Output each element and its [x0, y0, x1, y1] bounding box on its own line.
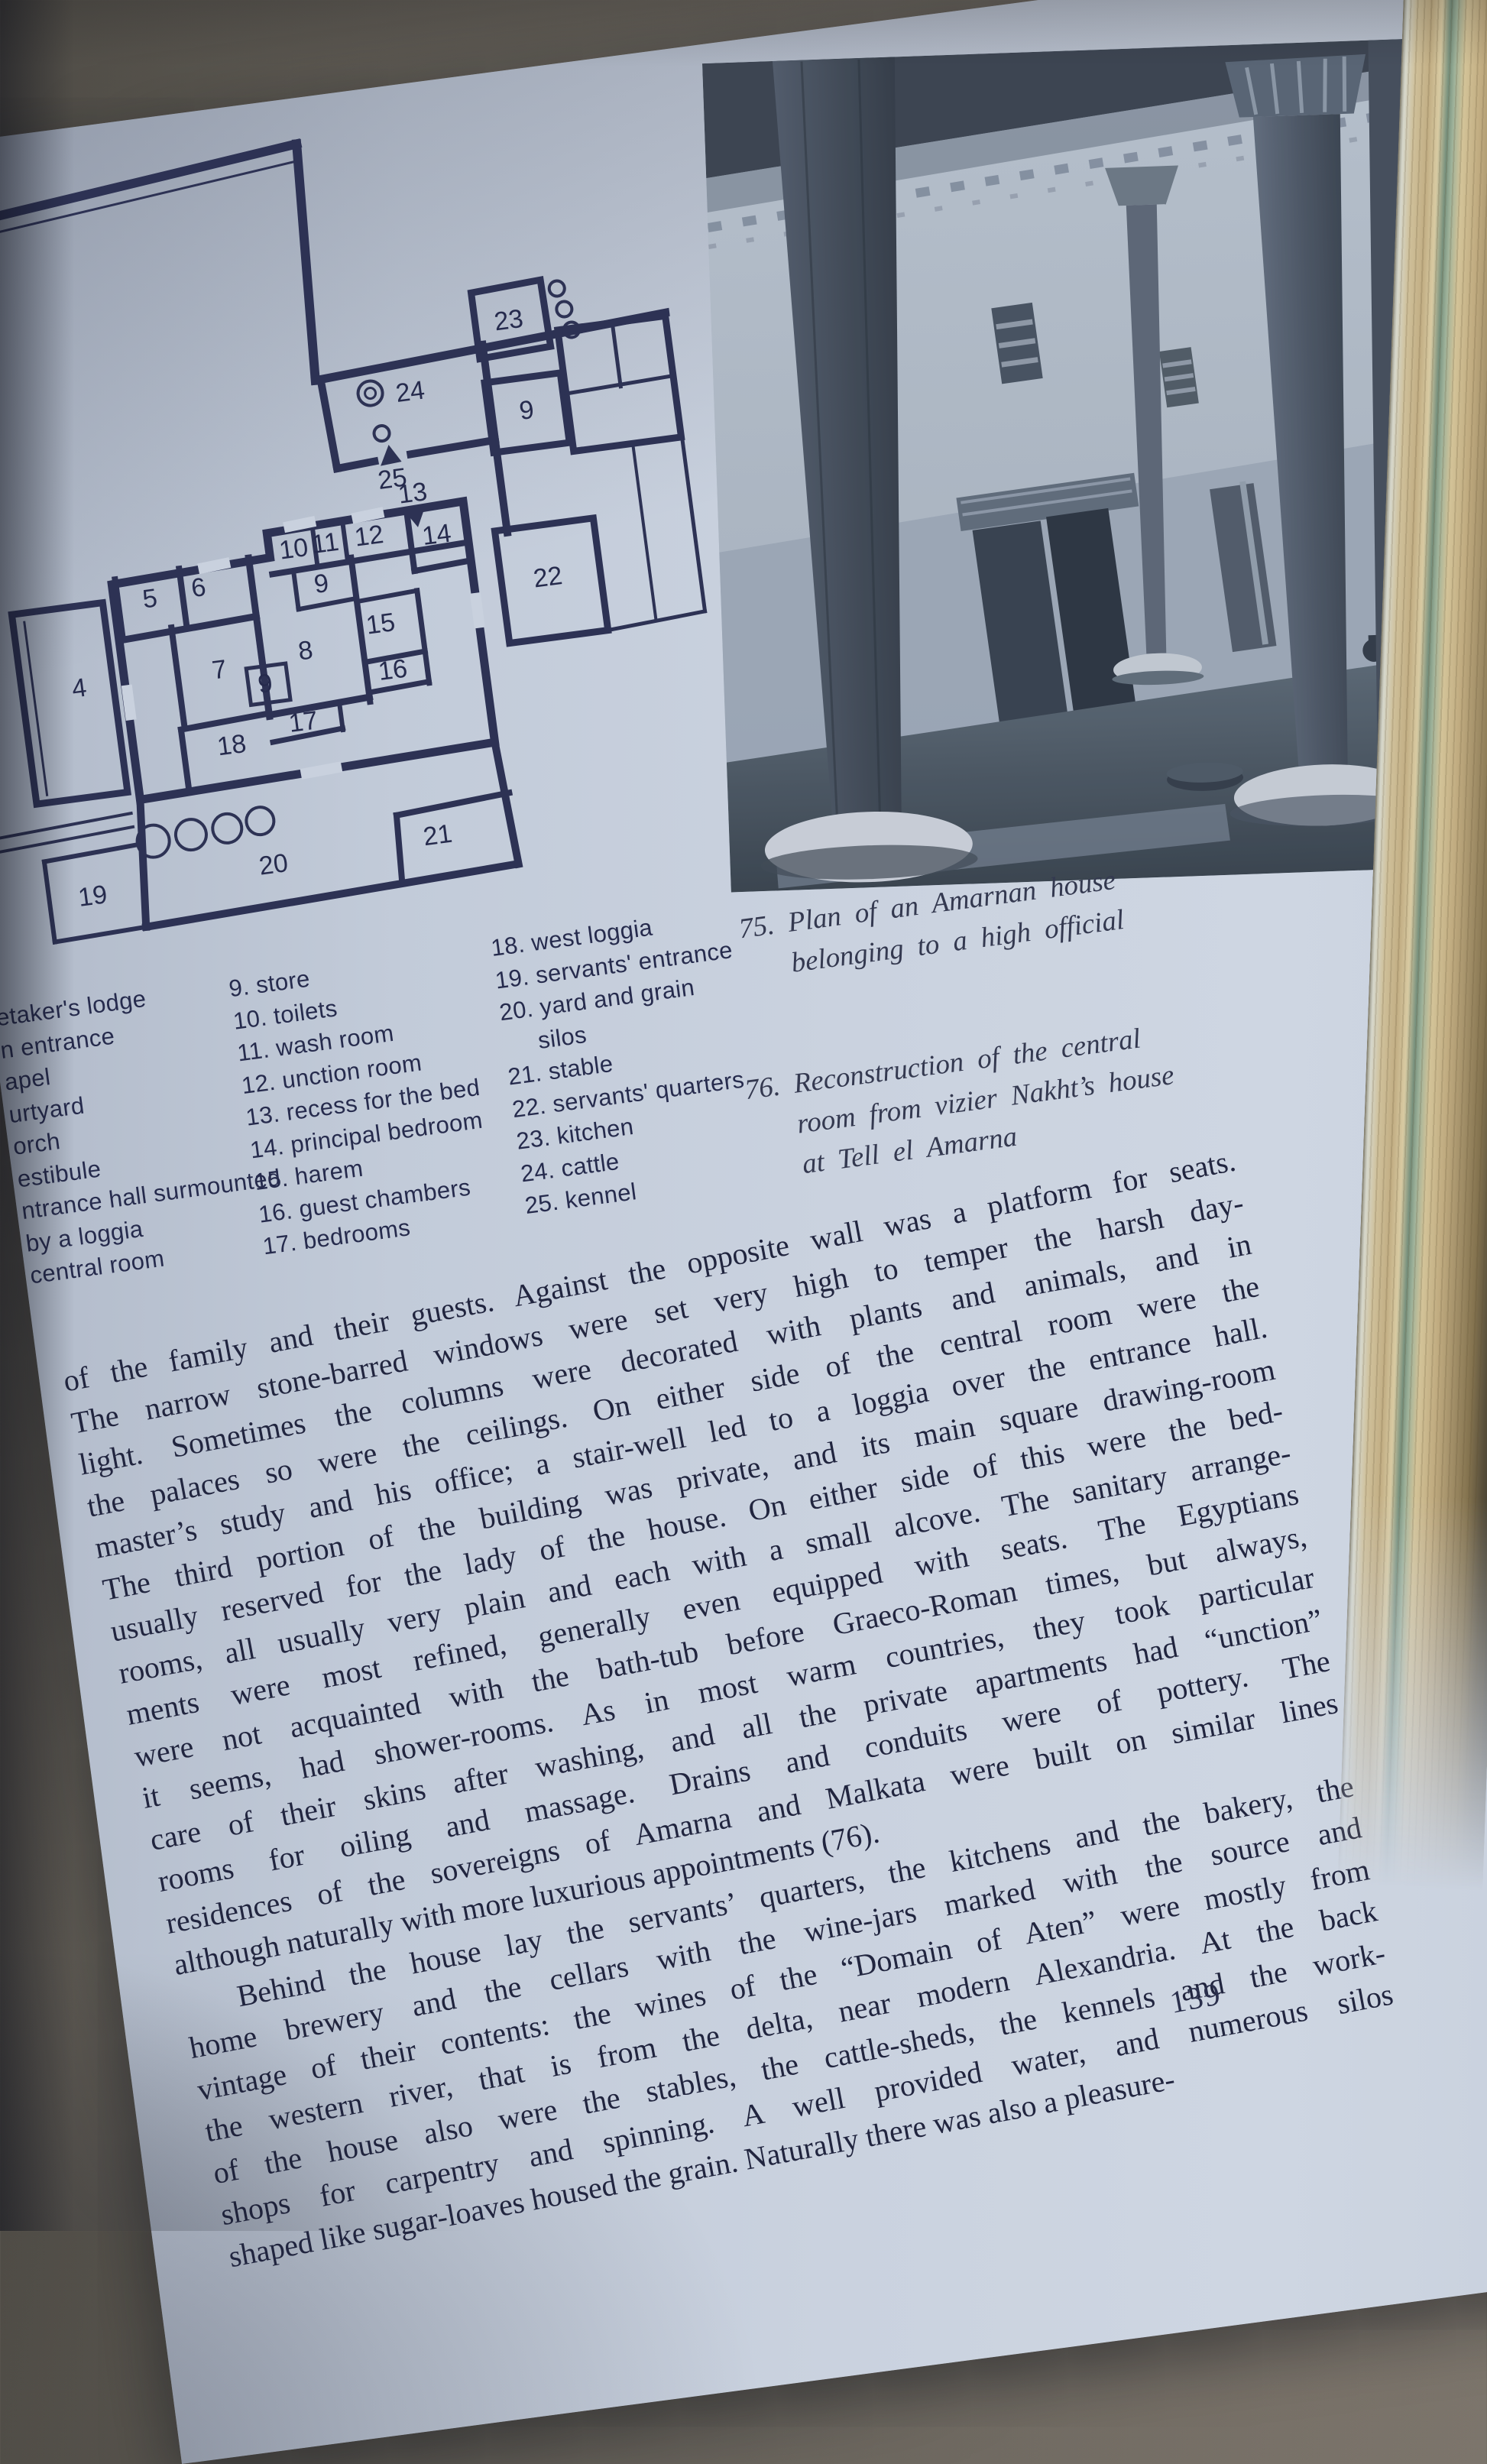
- plan-room-number: 5: [141, 583, 159, 614]
- plan-room-number: 18: [215, 729, 248, 762]
- plan-room-number: 11: [310, 527, 341, 559]
- photo-illustration-central-room: [702, 39, 1434, 892]
- plan-room-number: 15: [364, 608, 397, 640]
- plan-room-number: 9: [517, 395, 536, 426]
- plan-room-number: 24: [394, 375, 426, 408]
- plan-legend-column-3: 18. west loggia19. servants' entrance20.…: [489, 899, 785, 1223]
- plan-room-number: 6: [190, 572, 208, 603]
- plan-legend-column-2: 9. store10. toilets11. wash room12. unct…: [227, 939, 523, 1263]
- book-page: 4567899910111213141516171819202122232425: [0, 0, 1487, 2464]
- reconstruction-painting: [702, 39, 1434, 892]
- photographed-book-page: { "colors":{ "ink":"#262b4d", "body-ink"…: [0, 0, 1487, 2231]
- plan-room-number: 21: [422, 819, 454, 852]
- plan-room-number: 9: [256, 669, 274, 699]
- plan-room-number: 22: [532, 561, 564, 594]
- plan-room-number: 19: [76, 880, 109, 913]
- body-text: of the family and their guests. Against …: [60, 1136, 1419, 2278]
- plan-room-number: 17: [287, 705, 319, 738]
- plan-room-number: 10: [277, 533, 309, 566]
- plan-room-number: 25: [376, 462, 408, 495]
- plan-arrow-up: [378, 443, 402, 465]
- plan-room-number: 20: [258, 848, 290, 881]
- plan-room-number: 7: [210, 654, 228, 685]
- plan-room-number: 16: [377, 653, 409, 686]
- plan-room-number: 23: [492, 304, 524, 337]
- plan-room-number: 14: [420, 518, 452, 551]
- plan-room-number: 8: [296, 635, 315, 666]
- plan-room-number: 12: [353, 520, 385, 553]
- floor-plan: 4567899910111213141516171819202122232425: [0, 83, 742, 964]
- plan-room-number: 4: [70, 673, 89, 704]
- plan-room-number: 9: [313, 569, 331, 599]
